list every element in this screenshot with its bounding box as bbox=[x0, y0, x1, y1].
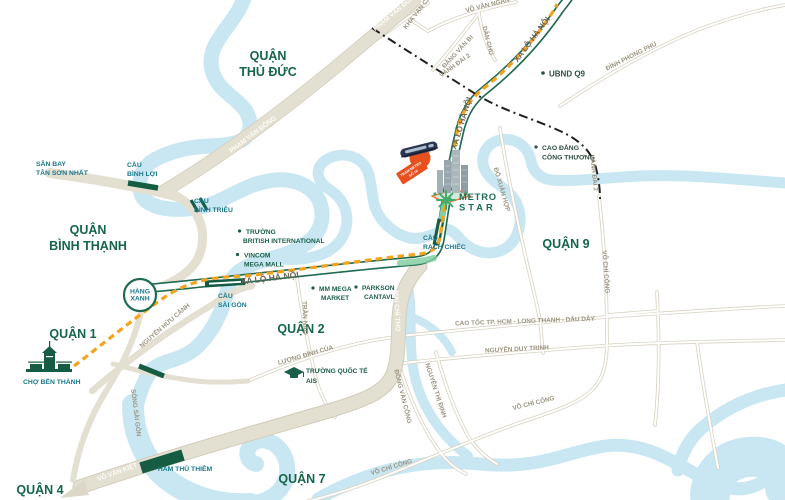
bullet-vincom bbox=[236, 253, 239, 256]
metro-star-logo-text-1: METRO bbox=[459, 191, 497, 202]
district-q7: QUẬN 7 bbox=[278, 471, 325, 486]
metro-star-logo-icon bbox=[437, 191, 455, 209]
river-mid-stream bbox=[408, 287, 468, 456]
metro-star-location-map: HÀNG XANH TRẠM METRO SỐ 10 bbox=[0, 0, 785, 500]
road-nguyen-duy-trinh bbox=[404, 340, 785, 363]
cau-sai-gon-label-2: SÀI GÒN bbox=[218, 300, 247, 309]
san-bay-label-2: TÂN SƠN NHẤT bbox=[36, 167, 89, 177]
cau-binh-trieu-label-2: BÌNH TRIỆU bbox=[194, 205, 233, 214]
metro-star-logo: METRO STAR bbox=[437, 191, 497, 213]
ais-school-label-1: TRƯỜNG QUỐC TẾ bbox=[306, 365, 368, 375]
parkson-label-1: PARKSON bbox=[362, 285, 395, 292]
hang-xanh-label-2: XANH bbox=[130, 296, 149, 303]
vincom-label-2: MEGA MALL bbox=[244, 262, 284, 269]
mm-mega-label-1: MM MEGA bbox=[319, 286, 352, 293]
vo-chi-cong-label-m: VÕ CHÍ CÔNG bbox=[511, 393, 555, 412]
british-school-label-1: TRƯỜNG bbox=[246, 227, 276, 236]
cau-binh-loi-label-1: CẦU bbox=[127, 159, 142, 169]
river-south-hook bbox=[247, 441, 287, 500]
xa-lo-ha-noi-label-top: XA LỘ HÀ NỘI bbox=[512, 15, 552, 64]
district-thu-duc-2: THỦ ĐỨC bbox=[239, 64, 297, 79]
cao-dang-label-1: CAO ĐẲNG bbox=[542, 143, 579, 152]
san-bay-label-1: SÂN BAY bbox=[36, 159, 66, 168]
district-binh-thanh-2: BÌNH THẠNH bbox=[49, 238, 127, 253]
ben-thanh-market-icon bbox=[26, 341, 72, 372]
district-q9: QUẬN 9 bbox=[542, 236, 589, 251]
dinh-phong-phu-label: ĐÌNH PHONG PHÚ bbox=[604, 39, 658, 73]
cao-dang-label-2: CÔNG THƯƠNG bbox=[542, 153, 595, 162]
bullet-cao-dang bbox=[534, 145, 537, 148]
luong-dinh-cua-label: LƯƠNG ĐÌNH CỦA bbox=[277, 342, 335, 367]
bullet-parkson bbox=[354, 285, 357, 288]
vanh-dai-2-label-b: VÀNH ĐAI 2 bbox=[588, 154, 601, 191]
metro-star-logo-text-2: STAR bbox=[459, 202, 496, 213]
dan-chu-label: DÂN CHỦ bbox=[480, 25, 496, 56]
district-q2: QUẬN 2 bbox=[277, 321, 324, 336]
road-dinh-phong-phu bbox=[560, 5, 785, 106]
cho-ben-thanh-label: CHỢ BẾN THÀNH bbox=[23, 376, 81, 386]
graduation-cap-icon bbox=[284, 367, 304, 378]
map-canvas: HÀNG XANH TRẠM METRO SỐ 10 bbox=[0, 0, 785, 500]
district-binh-thanh-1: QUẬN bbox=[70, 222, 107, 237]
bullet-british bbox=[238, 229, 241, 232]
cau-binh-loi-label-2: BÌNH LỢI bbox=[127, 169, 157, 178]
bullet-ubnd bbox=[541, 71, 545, 75]
district-q1: QUẬN 1 bbox=[49, 326, 96, 341]
mm-mega-label-2: MARKET bbox=[321, 295, 349, 302]
district-thu-duc-1: QUẬN bbox=[250, 48, 287, 63]
vo-van-ngan-label: VÕ VĂN NGÂN bbox=[464, 0, 510, 14]
district-q4: QUẬN 4 bbox=[16, 482, 63, 497]
vo-chi-cong-label-v: VÕ CHÍ CÔNG bbox=[601, 250, 613, 294]
nguyen-duy-trinh-label: NGUYỄN DUY TRINH bbox=[485, 342, 550, 354]
bullet-mm-mega bbox=[311, 286, 314, 289]
road-thu-thiem-bridge bbox=[113, 364, 248, 382]
british-school-label-2: BRITISH INTERNATIONAL bbox=[243, 238, 325, 245]
ubnd-q9-label: UBND Q9 bbox=[549, 70, 586, 79]
cau-binh-trieu-label-1: CẦU bbox=[194, 195, 209, 205]
hang-xanh-label-1: HÀNG bbox=[130, 287, 150, 296]
rach-chiec-river bbox=[272, 139, 785, 259]
ais-school-label-2: AIS bbox=[306, 378, 318, 385]
parkson-label-2: CANTAVL bbox=[364, 294, 395, 301]
vincom-label-1: VINCOM bbox=[244, 253, 271, 260]
